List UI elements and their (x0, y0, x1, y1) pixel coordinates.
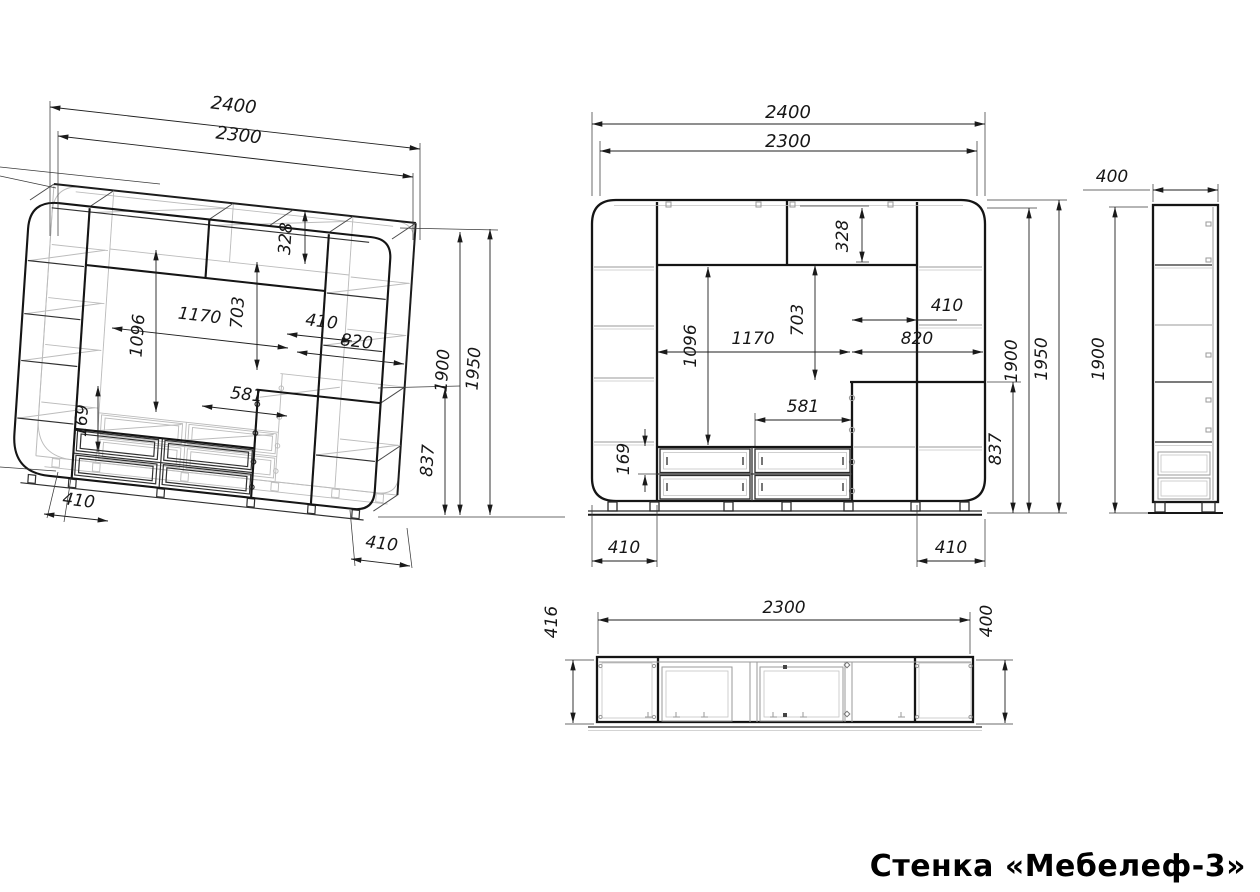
top-dim-depth-right: 400 (977, 605, 997, 637)
iso-dim-lower-height: 837 (417, 444, 439, 478)
iso-dim-tv-height: 1096 (127, 313, 150, 358)
front-dim-total-height: 1950 (1032, 337, 1052, 380)
front-dim-base-left: 410 (608, 538, 640, 558)
front-dim-top-section-height: 328 (833, 220, 853, 253)
iso-dim-top-section-height: 328 (275, 222, 297, 256)
iso-dim-base-left: 410 (61, 489, 96, 513)
side-dim-depth: 400 (1096, 167, 1128, 187)
top-dim-width: 2300 (762, 598, 805, 618)
front-dim-body-height: 1900 (1002, 339, 1022, 382)
iso-dim-body-height: 1900 (432, 348, 455, 393)
iso-dim-niche-height: 703 (227, 296, 249, 330)
front-dim-inner-width: 2300 (765, 131, 811, 152)
iso-dim-tv-width: 1170 (177, 304, 222, 329)
drawing-canvas: 2400 2300 328 1096 1170 703 410 820 581 … (0, 0, 1260, 892)
iso-dim-drawer-height: 169 (71, 404, 93, 438)
iso-dim-block-width: 820 (339, 330, 374, 354)
front-view: 2400 2300 328 1096 1170 703 410 820 581 … (540, 95, 1075, 580)
top-body (588, 657, 982, 731)
front-dim-block-width: 820 (901, 329, 933, 349)
side-dimension-lines (1115, 190, 1218, 513)
iso-dim-total-height: 1950 (463, 346, 486, 391)
iso-dim-shelf-width: 410 (304, 310, 339, 334)
top-view: 2300 416 400 (535, 590, 1035, 750)
front-dim-niche-height: 703 (788, 304, 808, 336)
side-body (1148, 205, 1223, 513)
iso-front-face (11, 200, 391, 521)
drawing-title: Стенка «Мебелеф-3» (870, 849, 1246, 884)
iso-dim-total-width: 2400 (210, 93, 258, 119)
front-body (588, 200, 985, 515)
top-extension-lines (565, 612, 1013, 724)
front-dim-base-right: 410 (935, 538, 967, 558)
iso-dim-base-right: 410 (364, 532, 399, 556)
front-dim-shelf-width: 410 (931, 296, 963, 316)
front-dim-drawer-width: 581 (787, 397, 819, 417)
iso-dimension-lines (44, 107, 490, 566)
iso-dim-inner-width: 2300 (215, 123, 263, 149)
side-dim-height: 1900 (1089, 337, 1109, 380)
iso-dim-drawer-width: 581 (229, 383, 264, 407)
top-dimension-lines (573, 620, 1005, 723)
top-dim-depth-left: 416 (542, 606, 562, 639)
front-dim-total-width: 2400 (765, 102, 811, 123)
side-view: 400 1900 (1075, 140, 1260, 530)
isometric-view: 2400 2300 328 1096 1170 703 410 820 581 … (0, 60, 575, 590)
front-dim-drawer-height: 169 (614, 443, 634, 475)
front-dim-tv-width: 1170 (731, 329, 774, 349)
front-dim-tv-height: 1096 (681, 324, 701, 367)
front-dim-lower-height: 837 (986, 433, 1006, 466)
